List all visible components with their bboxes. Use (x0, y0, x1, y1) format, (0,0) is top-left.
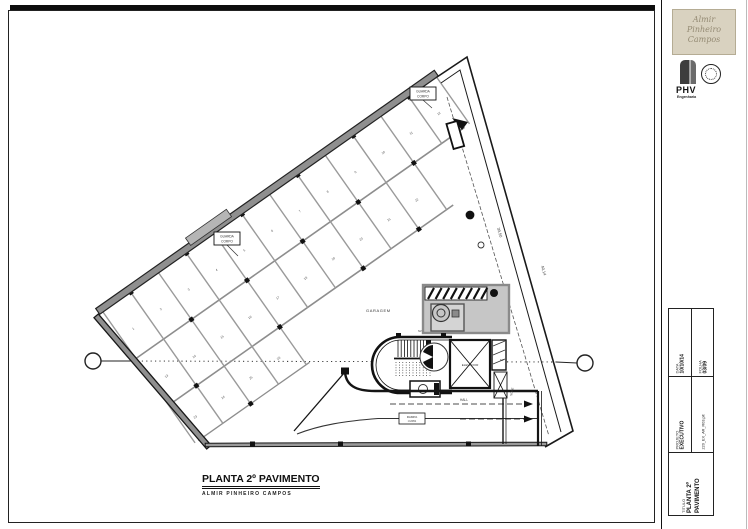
sobe-label: SOBE (509, 387, 515, 396)
level-tag: NV. (500, 358, 504, 362)
lane-arrow-icon (524, 416, 533, 423)
svg-text:9: 9 (354, 170, 358, 174)
section-line (85, 353, 593, 371)
field-data: DATA 10/10/14 (668, 308, 691, 376)
stair-core (372, 333, 452, 397)
phv-subtitle: Engenharia (677, 95, 696, 99)
page-subtitle: ALMIR PINHEIRO CAMPOS (202, 491, 320, 497)
svg-text:8: 8 (326, 189, 330, 193)
svg-text:14: 14 (192, 354, 197, 359)
machine-room (423, 285, 509, 333)
svg-text:CORPO: CORPO (221, 240, 233, 244)
section-marker-left-icon (85, 353, 101, 369)
svg-text:CORPO: CORPO (417, 95, 429, 99)
page-title: PLANTA 2º PAVIMENTO (202, 473, 320, 487)
svg-text:7: 7 (298, 209, 302, 213)
field-folha: FOLHA 03/09 (691, 308, 714, 376)
rampa-slope-label: i=20% (408, 419, 417, 423)
perimeter-wall-top-left (96, 70, 439, 314)
svg-text:22: 22 (414, 197, 419, 202)
svg-text:15: 15 (219, 334, 224, 339)
svg-text:3: 3 (187, 287, 191, 291)
level-tag: NV. (418, 329, 422, 333)
svg-text:18: 18 (303, 276, 308, 281)
svg-text:26: 26 (276, 356, 281, 361)
dimension-outer: 40,14 (540, 265, 548, 277)
svg-text:12: 12 (436, 111, 441, 116)
svg-text:4: 4 (215, 268, 219, 272)
svg-text:GUARDA: GUARDA (416, 90, 431, 94)
crea-seal-icon (701, 64, 721, 84)
service-shaft (492, 340, 506, 370)
svg-text:25: 25 (248, 375, 253, 380)
field-file: 220_EX_AR_R03.plt (691, 376, 714, 452)
field-titulo: TITULO PLANTA 2º PAVIMENTO (668, 452, 714, 516)
dimension-inner: 39,50 (496, 227, 504, 239)
drawing-sheet: 123456789101112 13141516171819202122 232… (0, 0, 748, 529)
equipment-icon (433, 305, 450, 322)
phv-logo-icon (680, 60, 696, 84)
svg-text:24: 24 (220, 395, 225, 400)
stall-numbers-row1: 123456789101112 (131, 111, 442, 331)
floor-plan: 123456789101112 13141516171819202122 232… (0, 0, 748, 529)
field-projeto: PROJETO EXECUTIVO (668, 376, 691, 452)
svg-text:5: 5 (242, 248, 246, 252)
office-logo: Almir Pinheiro Campos (672, 9, 736, 55)
logo-line: Almir (673, 15, 735, 25)
svg-text:11: 11 (409, 130, 414, 135)
lane-arrow-icon (524, 401, 533, 408)
svg-text:1: 1 (131, 326, 135, 330)
svg-text:17: 17 (275, 295, 280, 300)
field-columns (466, 211, 484, 248)
svg-text:23: 23 (193, 414, 198, 419)
svg-text:6: 6 (270, 229, 274, 233)
phv-name: PHV (676, 85, 696, 95)
svg-text:13: 13 (164, 373, 169, 378)
logo-line: Campos (673, 35, 735, 45)
svg-text:GUARDA: GUARDA (220, 235, 235, 239)
hall-label: HALL (460, 398, 468, 402)
svg-text:20: 20 (359, 236, 364, 241)
column-dot (490, 289, 498, 297)
logo-line: Pinheiro (673, 25, 735, 35)
elevador-label: ELEVADOR (462, 363, 479, 367)
svg-text:10: 10 (381, 150, 386, 155)
stall-numbers-row3: 23242526 (193, 356, 282, 420)
svg-text:21: 21 (386, 217, 391, 222)
svg-text:19: 19 (331, 256, 336, 261)
drawing-caption: PLANTA 2º PAVIMENTO ALMIR PINHEIRO CAMPO… (202, 473, 320, 497)
svg-text:16: 16 (247, 315, 252, 320)
svg-text:2: 2 (159, 307, 163, 311)
garagem-label: GARAGEM (366, 308, 391, 313)
elevator-shaft (450, 340, 507, 398)
section-marker-right-icon (577, 355, 593, 371)
